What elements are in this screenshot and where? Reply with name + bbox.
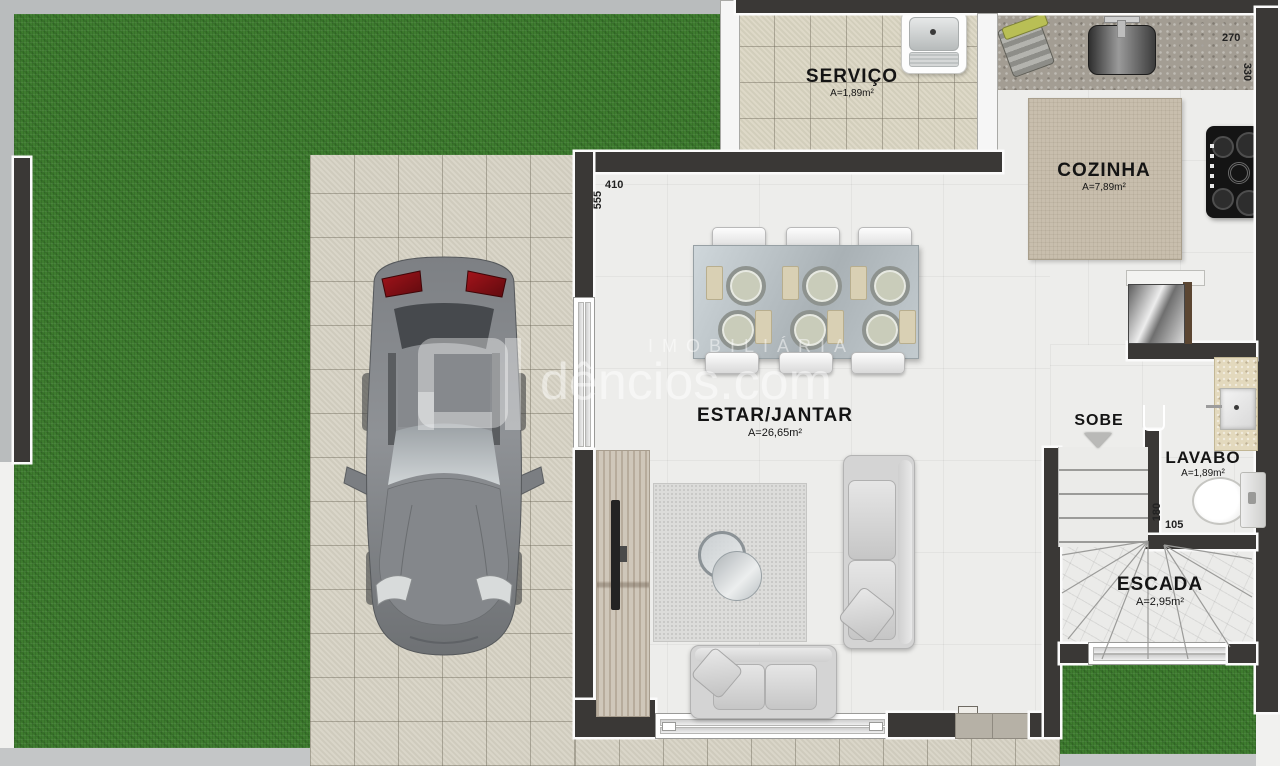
cooktop-center-coil-icon bbox=[1228, 162, 1250, 184]
service-left-wall bbox=[720, 0, 740, 159]
dim-555: 555 bbox=[592, 185, 604, 215]
service-kitchen-wall bbox=[977, 13, 998, 157]
room-name: ESTAR/JANTAR bbox=[660, 405, 890, 427]
wall-living-left-lower bbox=[575, 450, 593, 715]
napkin bbox=[782, 266, 799, 300]
room-name: SERVIÇO bbox=[752, 66, 952, 88]
label-estar-jantar: ESTAR/JANTAR A=26,65m² bbox=[660, 405, 890, 439]
sidewalk-left bbox=[0, 0, 14, 462]
coffee-table bbox=[712, 551, 762, 601]
place-setting-plate bbox=[718, 310, 758, 350]
napkin bbox=[755, 310, 772, 344]
window-handle-icon bbox=[662, 722, 676, 731]
lavabo-door-swing-icon bbox=[1143, 405, 1165, 431]
boundary-fence-left bbox=[14, 158, 30, 462]
back-yard-grass bbox=[1060, 663, 1256, 758]
room-name: SOBE bbox=[1054, 412, 1144, 430]
door-leaf bbox=[1128, 284, 1185, 344]
wall-right bbox=[1256, 8, 1278, 712]
room-area: A=1,89m² bbox=[1150, 468, 1256, 479]
room-name: ESCADA bbox=[1098, 574, 1222, 596]
dim-180: 180 bbox=[1151, 497, 1163, 527]
cooktop-burner-icon bbox=[1212, 188, 1234, 210]
sofa-cushion bbox=[848, 480, 896, 560]
wall-living-top bbox=[575, 152, 1002, 172]
place-setting-plate bbox=[802, 266, 842, 306]
label-cozinha: COZINHA A=7,89m² bbox=[1028, 160, 1180, 193]
sidewalk-top bbox=[0, 0, 722, 14]
room-name: LAVABO bbox=[1150, 448, 1256, 468]
window-rail bbox=[660, 727, 885, 734]
walkway-bottom bbox=[575, 737, 1060, 766]
sobe-arrow-icon bbox=[1084, 433, 1112, 448]
window-rail bbox=[578, 302, 584, 447]
place-setting-plate bbox=[726, 266, 766, 306]
napkin bbox=[850, 266, 867, 300]
dim-105: 105 bbox=[1165, 519, 1183, 531]
label-escada: ESCADA A=2,95m² bbox=[1098, 574, 1222, 608]
car-side-window bbox=[388, 353, 396, 445]
lavabo-drain-icon bbox=[1234, 405, 1239, 410]
floor-plan: SERVIÇO A=1,89m² COZINHA A=7,89m² ESTAR/… bbox=[0, 0, 1280, 766]
dining-chair bbox=[779, 352, 833, 374]
cooktop-knobs-icon bbox=[1210, 140, 1214, 188]
entry-door-swing-icon bbox=[958, 706, 978, 713]
sidewalk-bottom-right bbox=[1060, 754, 1256, 766]
label-sobe: SOBE bbox=[1054, 412, 1144, 430]
dim-270: 270 bbox=[1222, 32, 1240, 44]
tv-stand-icon bbox=[620, 546, 627, 562]
toilet-flush-button-icon bbox=[1248, 492, 1256, 504]
room-name: COZINHA bbox=[1028, 160, 1180, 182]
dim-330: 330 bbox=[1241, 57, 1253, 87]
room-area: A=2,95m² bbox=[1098, 596, 1222, 608]
kitchen-faucet-icon bbox=[1117, 20, 1126, 38]
napkin bbox=[899, 310, 916, 344]
place-setting-plate bbox=[790, 310, 830, 350]
tv bbox=[611, 500, 620, 610]
laundry-drain-icon bbox=[930, 29, 936, 35]
place-setting-plate bbox=[870, 266, 910, 306]
napkin bbox=[706, 266, 723, 300]
label-servico: SERVIÇO A=1,89m² bbox=[752, 66, 952, 99]
car-hood bbox=[380, 479, 509, 626]
window-rail bbox=[660, 719, 885, 726]
dim-410: 410 bbox=[605, 179, 623, 191]
lavabo-faucet-icon bbox=[1206, 405, 1222, 408]
living-left-window bbox=[573, 297, 595, 452]
place-setting-plate bbox=[862, 310, 902, 350]
stair-upper-flight bbox=[1058, 447, 1148, 547]
laundry-tub-board bbox=[909, 52, 959, 67]
room-area: A=26,65m² bbox=[660, 427, 890, 439]
wall-bottom-1 bbox=[888, 713, 955, 737]
car-side-window bbox=[492, 353, 500, 445]
cooktop-burner-icon bbox=[1212, 136, 1234, 158]
car-rear-window bbox=[394, 303, 494, 349]
window-handle-icon bbox=[869, 722, 883, 731]
wall-top bbox=[736, 0, 1278, 13]
sofa-backrest bbox=[898, 460, 912, 644]
napkin bbox=[827, 310, 844, 344]
car bbox=[340, 255, 548, 660]
wall-living-left-upper bbox=[575, 152, 593, 297]
dining-chair bbox=[851, 352, 905, 374]
label-lavabo: LAVABO A=1,89m² bbox=[1150, 448, 1256, 479]
dining-chair bbox=[705, 352, 759, 374]
room-area: A=7,89m² bbox=[1028, 182, 1180, 193]
tv-rack bbox=[596, 450, 650, 717]
front-yard-grass bbox=[14, 14, 722, 155]
car-roof bbox=[398, 351, 490, 427]
entry-step bbox=[955, 713, 1032, 739]
sofa-cushion bbox=[765, 664, 817, 710]
room-area: A=1,89m² bbox=[752, 88, 952, 99]
side-yard-grass bbox=[14, 155, 310, 748]
window-rail bbox=[585, 302, 591, 447]
sidewalk-bottom-left bbox=[0, 748, 310, 766]
